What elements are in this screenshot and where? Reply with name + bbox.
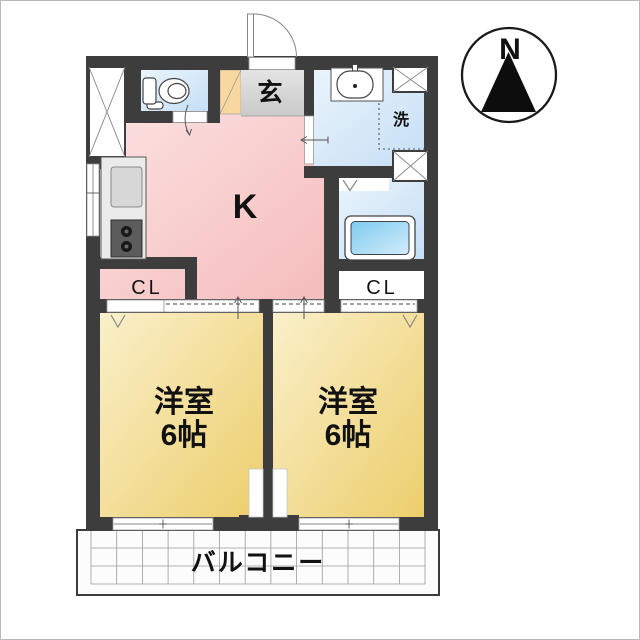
kitchen-sink-icon <box>111 167 142 207</box>
bedroom-right-size: 6帖 <box>325 419 372 452</box>
pillar <box>273 469 287 517</box>
compass-icon: N <box>462 28 556 122</box>
pipe-shaft-x-icon <box>89 67 125 157</box>
window-icon-left <box>113 518 213 530</box>
bathroom-door <box>339 178 389 191</box>
bedroom-left-size: 6帖 <box>161 419 208 452</box>
duct-x-icon-top <box>393 67 428 92</box>
entrance-door-leaf <box>248 14 254 57</box>
floor-plan-image: N K 玄 洗 CL CL 洋室 6帖 洋室 6帖 バルコニー <box>0 0 640 640</box>
balcony-label: バルコニー <box>191 549 326 577</box>
bedroom-left-name: 洋室 <box>154 385 214 419</box>
kitchen-counter <box>101 157 146 259</box>
bathtub-icon <box>345 216 415 260</box>
laundry-label: 洗 <box>393 110 409 129</box>
entrance-label: 玄 <box>257 78 282 107</box>
duct-x-icon-mid <box>393 151 428 181</box>
window-icon-right <box>299 518 399 530</box>
sink-icon <box>331 65 383 102</box>
kitchen-label: K <box>233 188 258 226</box>
kitchen-window-icon <box>87 164 99 236</box>
entrance-door-swing-arc <box>254 14 297 57</box>
floor-plan: N K 玄 洗 CL CL 洋室 6帖 洋室 6帖 バルコニー <box>1 1 639 639</box>
entrance-door <box>248 14 297 70</box>
bedroom-right-name: 洋室 <box>318 385 378 419</box>
closet-left-label: CL <box>131 277 163 299</box>
closet-right-label: CL <box>366 277 398 299</box>
stove-icon <box>111 220 142 257</box>
pillar <box>249 469 263 517</box>
